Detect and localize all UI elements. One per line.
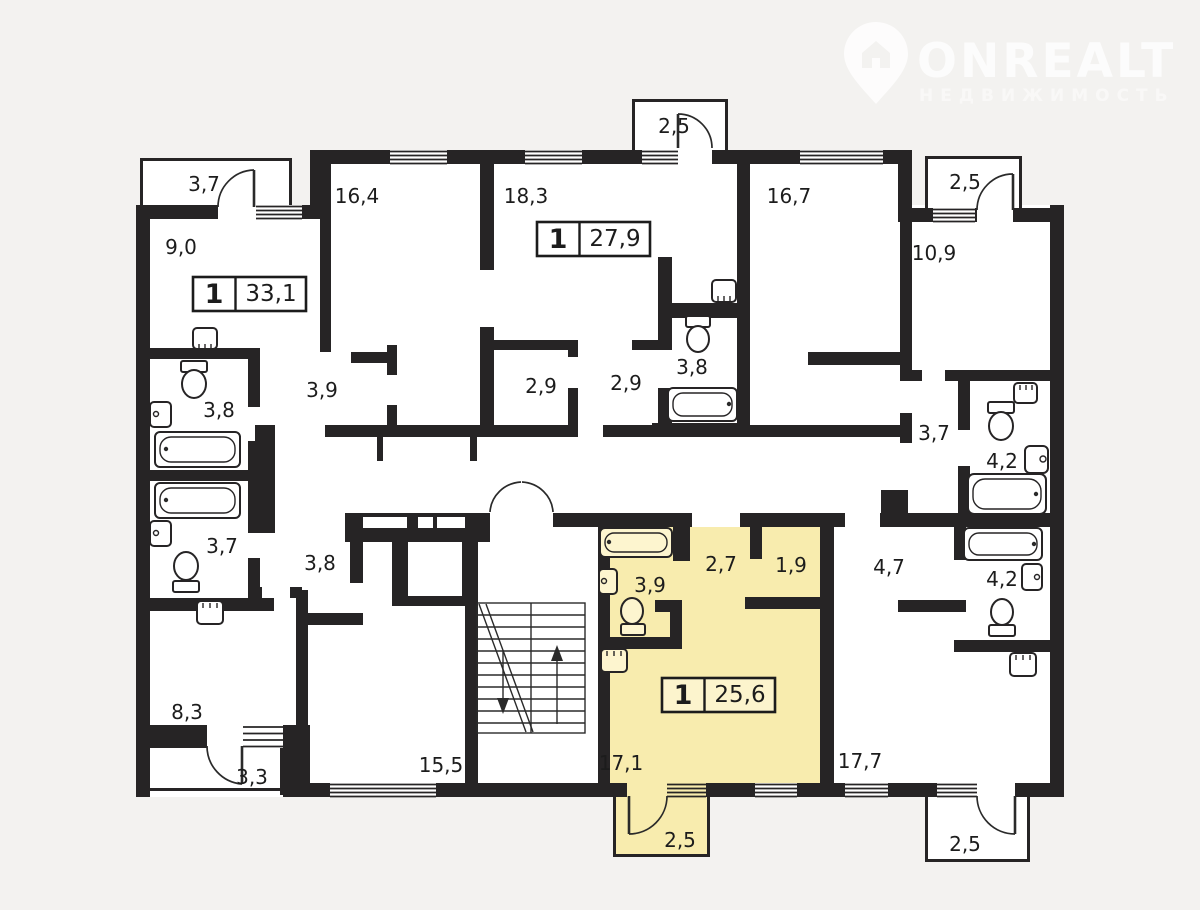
room-area-label: 2,9 xyxy=(525,374,557,398)
floor-plan-canvas: ONREALT НЕДВИЖИМОСТЬ xyxy=(0,0,1200,910)
room-area-label: 18,3 xyxy=(504,184,549,208)
room-area-label: 2,5 xyxy=(664,828,696,852)
room-area-label: 3,7 xyxy=(206,534,238,558)
sink-icon xyxy=(193,328,217,349)
window xyxy=(390,150,447,164)
sink-icon xyxy=(599,569,617,594)
window xyxy=(845,783,888,797)
toilet-icon xyxy=(988,402,1014,440)
room-area-label: 2,5 xyxy=(949,170,981,194)
bathtub-icon xyxy=(668,388,737,421)
toilet-icon xyxy=(173,552,199,592)
elevator-door xyxy=(437,517,465,528)
room-area-label: 1,9 xyxy=(775,553,807,577)
room-area-label: 9,0 xyxy=(165,235,197,259)
room-area-label: 2,9 xyxy=(610,371,642,395)
room-area-label: 3,8 xyxy=(304,551,336,575)
window xyxy=(755,783,797,797)
apartment-area: 33,1 xyxy=(245,281,296,307)
room-area-label: 2,5 xyxy=(658,114,690,138)
bathtub-icon xyxy=(964,528,1042,560)
room-area-label: 4,2 xyxy=(986,567,1018,591)
room-area-label: 3,8 xyxy=(676,355,708,379)
map-pin-icon xyxy=(844,22,908,104)
room-area-label: 17,1 xyxy=(599,751,644,775)
sink-icon xyxy=(1010,653,1036,676)
elevator-door xyxy=(363,517,407,528)
room-area-label: 2,5 xyxy=(949,832,981,856)
room-area-label: 16,7 xyxy=(767,184,812,208)
sink-icon xyxy=(1014,383,1037,403)
rooms-count: 1 xyxy=(549,224,568,255)
window xyxy=(937,783,977,797)
sink-icon xyxy=(601,649,627,672)
room-area-label: 16,4 xyxy=(335,184,380,208)
sink-icon xyxy=(1025,446,1048,473)
room-area-label: 3,7 xyxy=(188,172,220,196)
rooms-count: 1 xyxy=(205,279,224,310)
sink-icon xyxy=(150,521,171,546)
window xyxy=(933,208,975,222)
onrealt-logo: ONREALT НЕДВИЖИМОСТЬ xyxy=(844,22,1176,106)
toilet-icon xyxy=(989,599,1015,636)
toilet-icon xyxy=(181,361,207,398)
sink-icon xyxy=(1022,564,1042,590)
toilet-icon xyxy=(686,316,710,352)
sink-icon xyxy=(712,280,736,302)
room-area-label: 3,7 xyxy=(918,421,950,445)
room-area-label: 15,5 xyxy=(419,753,464,777)
window xyxy=(800,150,883,164)
window xyxy=(642,150,678,164)
apartment-badge-27-9[interactable]: 1 27,9 xyxy=(537,222,650,256)
room-area-label: 3,9 xyxy=(634,573,666,597)
window xyxy=(243,725,283,748)
room-area-label: 8,3 xyxy=(171,700,203,724)
room-area-label: 2,7 xyxy=(705,552,737,576)
room-area-label: 3,9 xyxy=(306,378,338,402)
bathtub-icon xyxy=(600,528,672,557)
room-area-label: 10,9 xyxy=(912,241,957,265)
room-area-label: 4,2 xyxy=(986,449,1018,473)
brand-text: ONREALT xyxy=(917,34,1176,89)
sink-icon xyxy=(197,601,223,624)
floor-plan-page: ONREALT НЕДВИЖИМОСТЬ xyxy=(0,0,1200,910)
window xyxy=(256,205,302,219)
window xyxy=(330,783,436,797)
brand-subtitle: НЕДВИЖИМОСТЬ xyxy=(919,86,1175,106)
room-area-label: 4,7 xyxy=(873,555,905,579)
bathtub-icon xyxy=(155,483,240,518)
rooms-count: 1 xyxy=(674,680,693,711)
bathtub-icon xyxy=(968,474,1046,514)
room-area-label: 3,3 xyxy=(236,765,268,789)
elevator-door xyxy=(418,517,433,528)
room-area-label: 17,7 xyxy=(838,749,883,773)
apartment-area: 27,9 xyxy=(589,226,640,252)
toilet-icon xyxy=(621,598,645,635)
window xyxy=(525,150,582,164)
apartment-area: 25,6 xyxy=(714,682,765,708)
apartment-badge-25-6[interactable]: 1 25,6 xyxy=(662,678,775,712)
room-area-label: 3,8 xyxy=(203,398,235,422)
sink-icon xyxy=(150,402,171,427)
apartment-badge-33-1[interactable]: 1 33,1 xyxy=(193,277,306,311)
window xyxy=(667,783,706,797)
bathtub-icon xyxy=(155,432,240,467)
